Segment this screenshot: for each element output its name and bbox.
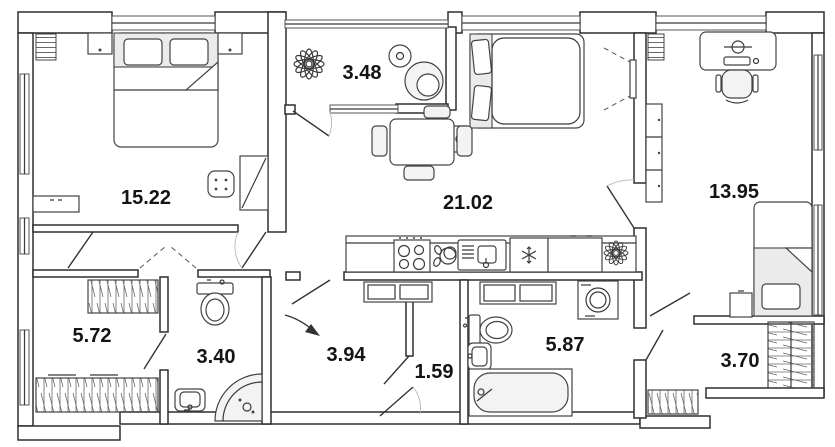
dresser-icon xyxy=(33,196,79,212)
cabinet-icon xyxy=(364,282,432,302)
tv-icon xyxy=(604,48,636,110)
chair-icon xyxy=(404,166,434,180)
room-label-balcony: 3.48 xyxy=(343,62,382,84)
room-label-wardrobe: 5.72 xyxy=(73,325,112,347)
wardrobe-icon xyxy=(240,156,268,210)
single-bed-icon xyxy=(754,202,812,316)
floor-plan-svg: 15.22 3.48 21.02 13.95 5.72 3.40 3.94 1.… xyxy=(0,0,835,447)
fridge-snowflake-icon xyxy=(510,238,548,272)
door-living-hall xyxy=(292,280,330,304)
room-label-closet: 3.70 xyxy=(721,350,760,372)
room-label-shower-room: 3.40 xyxy=(197,346,236,368)
window-icon xyxy=(814,55,822,150)
nightstand-icon xyxy=(218,33,242,54)
sofa-bed-icon xyxy=(470,34,584,128)
corner-shower-icon xyxy=(215,374,262,421)
double-bed-icon xyxy=(114,33,218,147)
desk-icon xyxy=(700,32,776,70)
pouf-icon xyxy=(208,171,234,197)
room-label-bedroom-2: 13.95 xyxy=(709,181,759,203)
balcony-window-icon xyxy=(330,105,398,113)
clothes-rail-icon xyxy=(36,375,158,412)
cabinet-icon xyxy=(480,282,556,304)
door-living-bedroom2 xyxy=(607,180,634,228)
window-icon xyxy=(20,218,29,254)
room-label-bathroom: 5.87 xyxy=(546,334,585,356)
office-chair-icon xyxy=(716,70,758,103)
round-table-icon xyxy=(389,45,411,67)
chair-icon xyxy=(372,126,387,156)
window-icon xyxy=(112,16,215,30)
door-balcony xyxy=(293,111,332,136)
cabinet-icon xyxy=(548,236,602,272)
kitchen-counter-icon xyxy=(346,236,636,272)
floor-plan-canvas: 15.22 3.48 21.02 13.95 5.72 3.40 3.94 1.… xyxy=(0,0,835,447)
bathtub-icon xyxy=(469,369,572,416)
door-corridor xyxy=(384,356,409,384)
room-label-hallway: 3.94 xyxy=(327,344,367,366)
door-bedroom2-lobby xyxy=(650,293,690,316)
door-bathroom xyxy=(646,330,663,360)
washing-machine-icon xyxy=(578,281,618,319)
chair-icon xyxy=(424,106,450,118)
clothes-rail-icon xyxy=(768,322,814,388)
armchair-icon xyxy=(405,62,443,100)
radiator-icon xyxy=(648,34,664,60)
window-icon xyxy=(656,16,766,30)
opening-dashed xyxy=(140,246,196,268)
door-wardrobe-strip xyxy=(68,232,93,268)
stove-icon xyxy=(394,237,430,272)
chair-icon xyxy=(457,126,472,156)
window-icon xyxy=(462,16,580,30)
room-label-kitchen-living: 21.02 xyxy=(443,192,493,214)
toilet-icon xyxy=(197,280,233,325)
sink-icon xyxy=(458,240,506,270)
window-icon xyxy=(20,74,29,174)
dining-table-icon xyxy=(372,106,472,180)
radiator-icon xyxy=(36,34,56,60)
entry-arrow-icon xyxy=(285,315,320,336)
wash-basin-icon xyxy=(175,389,205,411)
window-icon xyxy=(20,330,29,405)
window-icon xyxy=(814,205,822,315)
toilet-icon xyxy=(464,315,512,345)
plant-icon xyxy=(294,49,324,79)
clothes-rail-icon xyxy=(88,280,158,313)
room-label-bedroom: 15.22 xyxy=(121,187,171,209)
door-bedroom xyxy=(235,232,266,268)
nightstand-icon xyxy=(730,291,752,317)
nightstand-icon xyxy=(88,33,112,54)
wash-basin-icon xyxy=(468,343,491,370)
room-label-corridor: 1.59 xyxy=(415,361,454,383)
cabinet-icon xyxy=(646,104,662,202)
door-shower-room xyxy=(144,334,166,369)
window-icon xyxy=(285,20,448,28)
shoe-rack-icon xyxy=(648,390,698,414)
